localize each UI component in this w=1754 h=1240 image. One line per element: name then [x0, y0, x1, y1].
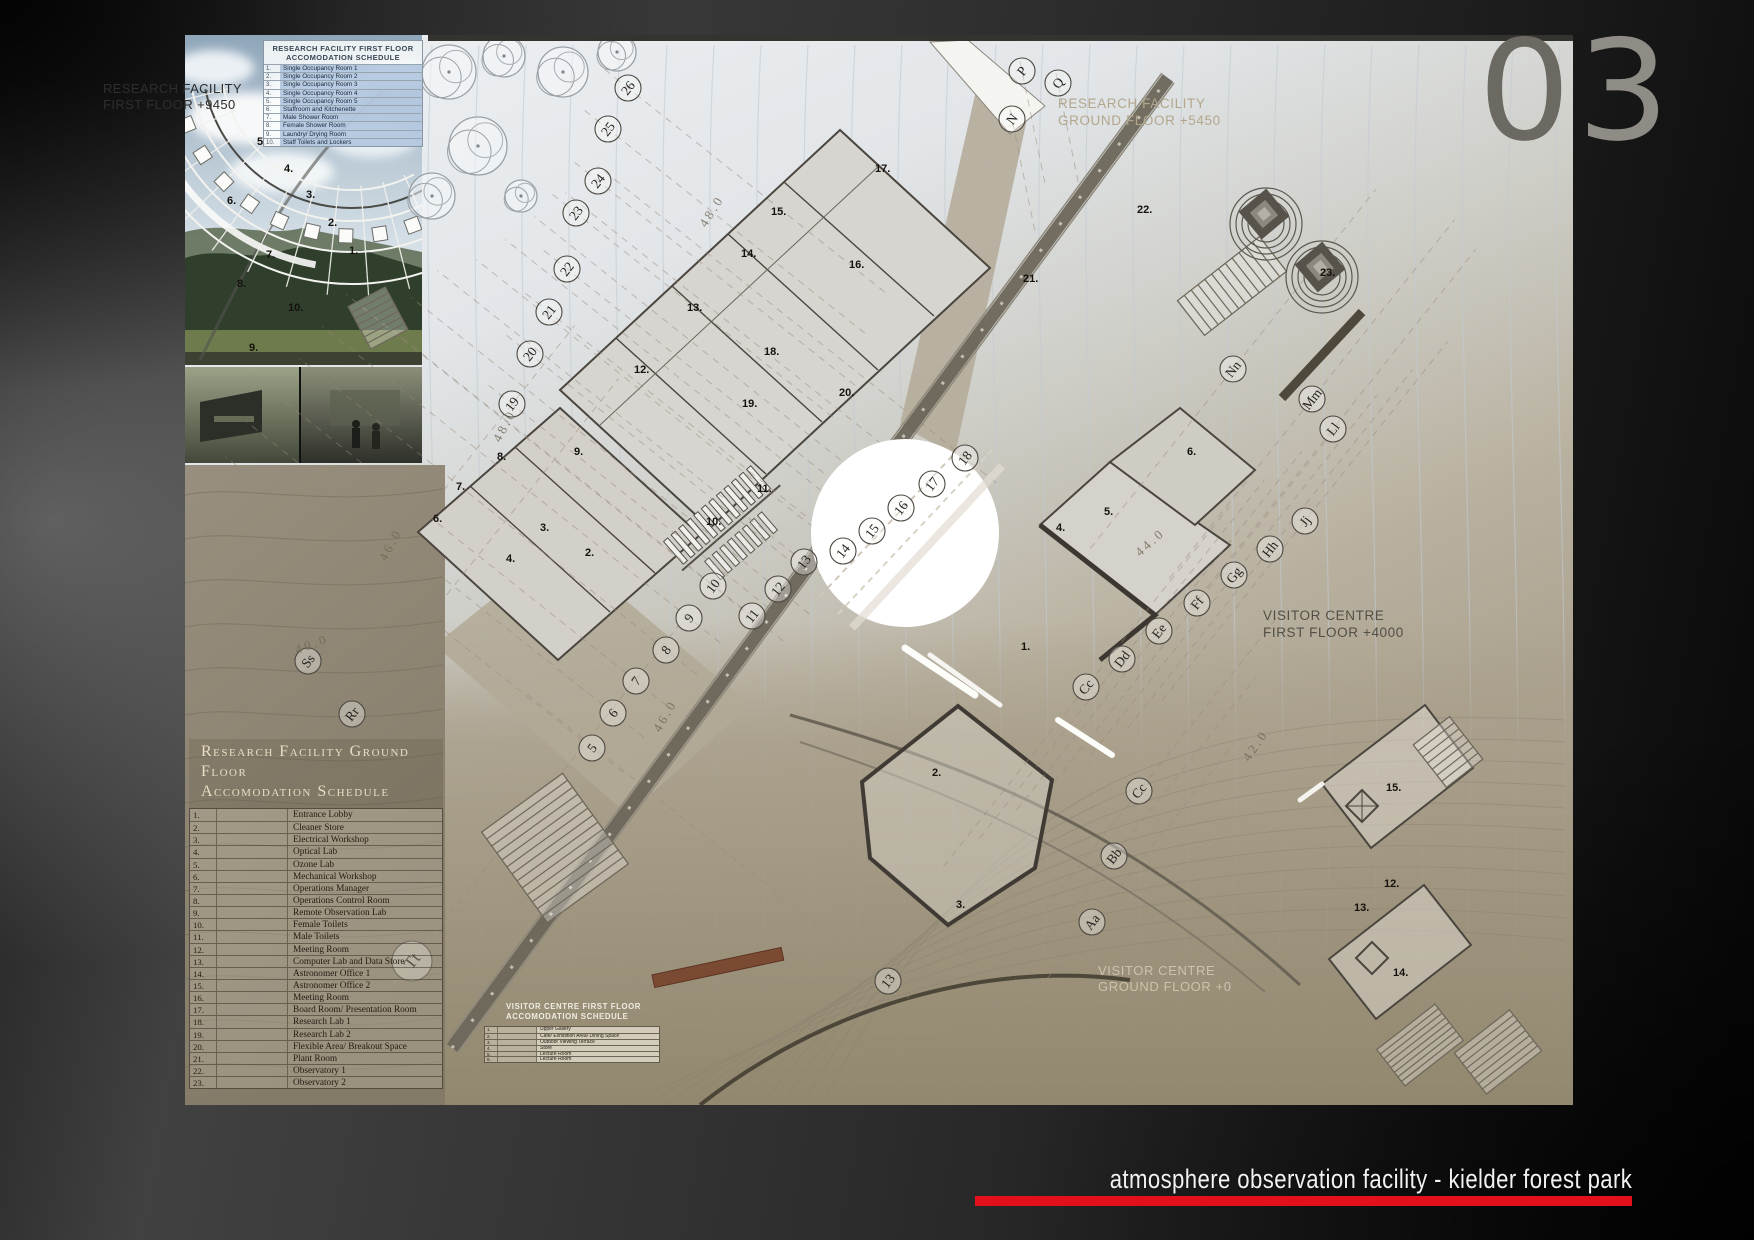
- table-row: 8.Female Shower Room: [264, 121, 422, 129]
- room-number: 7.: [266, 249, 275, 261]
- title-underline-bar: [975, 1196, 1632, 1206]
- grid-bubble: Ee: [1146, 618, 1172, 644]
- grid-bubble: P: [1009, 58, 1035, 84]
- table-row: 5.Single Occupancy Room 5: [264, 97, 422, 105]
- table-row: 13.Computer Lab and Data Store: [190, 955, 442, 967]
- room-number: 3.: [306, 189, 315, 201]
- table-row: 22.Observatory 1: [190, 1064, 442, 1076]
- room-number: 13.: [1354, 902, 1369, 914]
- grid-bubble: N: [999, 106, 1025, 132]
- table-row: 9.Laundry/ Drying Room: [264, 130, 422, 138]
- presentation-board: 17.15.14.16.21.13.18.12.19.20.8.9.7.11.6…: [0, 0, 1754, 1240]
- room-number: 15.: [1386, 782, 1401, 794]
- room-number: 3.: [956, 899, 965, 911]
- table-row: 1.Entrance Lobby: [190, 809, 442, 821]
- table-row: 14.Astronomer Office 1: [190, 967, 442, 979]
- grid-bubble: 13: [791, 549, 817, 575]
- table-row: 2.Cleaner Store: [190, 821, 442, 833]
- grid-bubble: 16: [888, 495, 914, 521]
- grid-bubble: 10: [700, 573, 726, 599]
- table-row: 18.Research Lab 1: [190, 1015, 442, 1027]
- grid-bubble: 17: [919, 471, 945, 497]
- room-number: 5.: [1104, 506, 1113, 518]
- sheet-top-edge: [428, 35, 1573, 41]
- room-number: 22.: [1137, 204, 1152, 216]
- table-title: RESEARCH FACILITY FIRST FLOOR ACCOMODATI…: [264, 41, 422, 64]
- room-number: 3.: [540, 522, 549, 534]
- table-row: 23.Observatory 2: [190, 1076, 442, 1088]
- grid-bubble: 5: [579, 735, 605, 761]
- table-row: 6.Mechanical Workshop: [190, 870, 442, 882]
- room-number: 14.: [741, 248, 756, 260]
- grid-bubble: Cc: [1126, 778, 1152, 804]
- grid-bubble: Dd: [1109, 646, 1135, 672]
- room-number: 4.: [284, 163, 293, 175]
- table-row: 17.Board Room/ Presentation Room: [190, 1003, 442, 1015]
- research-facility-first-floor-label: RESEARCH FACILITYFIRST FLOOR +9450: [103, 81, 242, 112]
- grid-bubble: 23: [563, 200, 589, 226]
- table-row: 11.Male Toilets: [190, 930, 442, 942]
- room-number: 1.: [349, 245, 358, 257]
- table-row: 4.Optical Lab: [190, 845, 442, 857]
- table-row: 15.Astronomer Office 2: [190, 979, 442, 991]
- room-number: 8.: [497, 451, 506, 463]
- ground-floor-schedule-table: Research Facility Ground Floor Accomodat…: [189, 739, 443, 1089]
- grid-bubble: 21: [536, 299, 562, 325]
- table-row: 1.Upper Gallery: [485, 1027, 659, 1033]
- grid-bubble: 7: [623, 668, 649, 694]
- room-number: 9.: [574, 446, 583, 458]
- grid-bubble: Q: [1045, 70, 1071, 96]
- table-row: 16.Meeting Room: [190, 991, 442, 1003]
- room-number: 19.: [742, 398, 757, 410]
- foreground-band: [185, 352, 422, 365]
- grid-bubble: Ff: [1184, 590, 1210, 616]
- grid-bubble: Ll: [1320, 416, 1346, 442]
- table-row: 19.Research Lab 2: [190, 1028, 442, 1040]
- grid-bubble: 8: [653, 637, 679, 663]
- table-row: 6.Staffroom and Kitchenette: [264, 105, 422, 113]
- room-number: 6.: [227, 195, 236, 207]
- first-floor-schedule-table: RESEARCH FACILITY FIRST FLOOR ACCOMODATI…: [263, 40, 423, 147]
- room-number: 14.: [1393, 967, 1408, 979]
- grid-bubble: 15: [859, 518, 885, 544]
- room-number: 23.: [1320, 267, 1335, 279]
- grid-bubble: Nn: [1220, 356, 1246, 382]
- table-row: 12.Meeting Room: [190, 943, 442, 955]
- grid-bubble: Bb: [1101, 843, 1127, 869]
- grid-bubble: Rr: [339, 701, 365, 727]
- table-row: 2.Single Occupancy Room 2: [264, 72, 422, 80]
- room-number: 4.: [506, 553, 515, 565]
- grid-bubble: Jj: [1292, 508, 1318, 534]
- room-number: 2.: [328, 217, 337, 229]
- room-number: 10.: [706, 516, 721, 528]
- grid-bubble: 25: [595, 116, 621, 142]
- room-number: 6.: [1187, 446, 1196, 458]
- table-row: 2.Cafe/ Exhibition Area/ Dining Space: [485, 1033, 659, 1039]
- table-row: 10.Staff Toilets and Lockers: [264, 138, 422, 146]
- table-row: 1.Single Occupancy Room 1: [264, 64, 422, 72]
- project-title: atmosphere observation facility - kielde…: [1109, 1164, 1632, 1195]
- table-title: Research Facility Ground Floor Accomodat…: [189, 739, 443, 808]
- table-row: 10.Female Toilets: [190, 918, 442, 930]
- grid-bubble: 12: [765, 576, 791, 602]
- room-number: 6.: [433, 513, 442, 525]
- table-row: 4.Store: [485, 1045, 659, 1051]
- table-row: 3.Outdoor Viewing Terrace: [485, 1039, 659, 1045]
- room-number: 4.: [1056, 522, 1065, 534]
- grid-bubble: 14: [830, 538, 856, 564]
- room-number: 2.: [932, 767, 941, 779]
- grid-bubble: 20: [517, 341, 543, 367]
- room-number: 11.: [757, 483, 772, 495]
- grid-bubble: 26: [615, 75, 641, 101]
- grid-bubble: 6: [600, 700, 626, 726]
- research-facility-ground-floor-label: RESEARCH FACILITYGROUND FLOOR +5450: [1058, 95, 1221, 129]
- table-row: 5.Lecture Room: [485, 1051, 659, 1057]
- table-row: 4.Single Occupancy Room 4: [264, 89, 422, 97]
- table-title: VISITOR CENTRE FIRST FLOOR ACCOMODATION …: [484, 1002, 660, 1026]
- room-number: 18.: [764, 346, 779, 358]
- room-number: 21.: [1023, 273, 1038, 285]
- room-number: 16.: [849, 259, 864, 271]
- room-number: 17.: [875, 163, 890, 175]
- table-row: 5.Ozone Lab: [190, 858, 442, 870]
- grid-bubble: 9: [676, 605, 702, 631]
- grid-bubble: Gg: [1221, 562, 1247, 588]
- grid-bubble: Aa: [1079, 909, 1105, 935]
- room-number: 15.: [771, 206, 786, 218]
- grid-bubble: Cc: [1073, 674, 1099, 700]
- room-number: 8.: [237, 278, 246, 290]
- room-number: 20.: [839, 387, 854, 399]
- room-number: 2.: [585, 547, 594, 559]
- grid-bubble: Mm: [1299, 385, 1325, 412]
- room-number: 9.: [249, 342, 258, 354]
- room-number: 1.: [1021, 641, 1030, 653]
- table-row: 9.Remote Observation Lab: [190, 906, 442, 918]
- room-number: 13.: [687, 302, 702, 314]
- visitor-centre-ground-floor-label: VISITOR CENTREGROUND FLOOR +0: [1098, 963, 1232, 995]
- table-row: 3.Single Occupancy Room 3: [264, 80, 422, 88]
- room-number: 7.: [456, 481, 465, 493]
- visitor-centre-first-floor-label: VISITOR CENTREFIRST FLOOR +4000: [1263, 607, 1404, 641]
- render-strip: [185, 367, 422, 463]
- table-row: 6.Lecture Room: [485, 1056, 659, 1062]
- table-row: 3.Electrical Workshop: [190, 833, 442, 845]
- room-number: 10.: [288, 302, 303, 314]
- table-row: 20.Flexible Area/ Breakout Space: [190, 1040, 442, 1052]
- visitor-centre-schedule-table: VISITOR CENTRE FIRST FLOOR ACCOMODATION …: [484, 1002, 660, 1063]
- grid-bubble: Hh: [1257, 536, 1283, 562]
- grid-bubble: 13: [875, 968, 901, 994]
- sheet-number: 03: [1478, 22, 1676, 161]
- room-number: 12.: [634, 364, 649, 376]
- table-row: 21.Plant Room: [190, 1052, 442, 1064]
- grid-bubble: 22: [554, 256, 580, 282]
- grid-bubble: 18: [952, 445, 978, 471]
- table-row: 7.Operations Manager: [190, 882, 442, 894]
- table-row: 8.Operations Control Room: [190, 894, 442, 906]
- grid-bubble: 24: [585, 168, 611, 194]
- room-number: 12.: [1384, 878, 1399, 890]
- table-row: 7.Male Shower Room: [264, 113, 422, 121]
- grid-bubble: 11: [739, 603, 765, 629]
